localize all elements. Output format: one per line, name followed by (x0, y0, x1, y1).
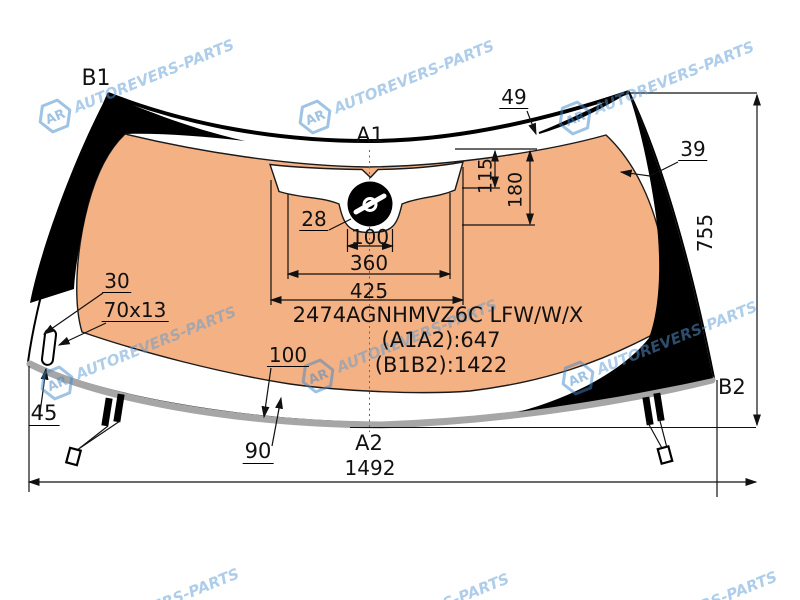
dim-100-bottom: 100 (267, 345, 309, 367)
dim-425: 425 (350, 281, 388, 301)
dim-115: 115 (477, 158, 496, 194)
dim-755: 755 (695, 214, 715, 252)
svg-text:AUTOREVERS-PARTS: AUTOREVERS-PARTS (590, 38, 757, 119)
locating-pins-left (66, 394, 124, 466)
dim-28: 28 (299, 209, 328, 231)
dim-180: 180 (507, 172, 526, 208)
watermark-logo: AUTOREVERS-PARTS (613, 568, 780, 600)
dim-b1b2: (B1B2):1422 (375, 355, 507, 376)
svg-text:AR: AR (303, 108, 327, 129)
corner-label-b1: B1 (81, 68, 110, 90)
corner-label-b2: B2 (718, 377, 746, 398)
locating-pins-right (642, 393, 672, 464)
corner-label-a1: A1 (356, 125, 384, 146)
svg-text:AUTOREVERS-PARTS: AUTOREVERS-PARTS (330, 37, 497, 118)
watermark-logo: AR AUTOREVERS-PARTS (555, 33, 759, 137)
svg-text:AUTOREVERS-PARTS: AUTOREVERS-PARTS (345, 570, 512, 600)
dim-360: 360 (350, 253, 388, 273)
svg-text:AUTOREVERS-PARTS: AUTOREVERS-PARTS (613, 568, 780, 600)
dim-30: 30 (102, 271, 131, 293)
windshield-technical-diagram: AR AUTOREVERS-PARTS AR AUTOREVERS-PARTS … (0, 0, 800, 600)
clip-symbol-right (658, 446, 673, 463)
dim-70x13: 70x13 (102, 300, 169, 322)
dim-45: 45 (29, 403, 60, 426)
corner-label-a2: A2 (355, 433, 383, 454)
clip-symbol-left (66, 448, 81, 465)
svg-text:AR: AR (43, 107, 67, 128)
dim-100-sensor: 100 (351, 227, 389, 247)
watermark-logo: AUTOREVERS-PARTS (75, 565, 242, 600)
watermark-logo: AR AUTOREVERS-PARTS (295, 32, 499, 136)
dim-1492: 1492 (345, 458, 396, 478)
watermark-logo: AUTOREVERS-PARTS (345, 570, 512, 600)
dim-90: 90 (243, 441, 274, 464)
dim-49: 49 (499, 87, 528, 109)
dim-a1a2: (A1A2):647 (382, 330, 501, 351)
rain-sensor-icon (348, 182, 393, 227)
part-code: 2474AGNHMVZ6C LFW/W/X (293, 305, 584, 326)
svg-text:AUTOREVERS-PARTS: AUTOREVERS-PARTS (75, 565, 242, 600)
dim-39: 39 (678, 139, 707, 161)
